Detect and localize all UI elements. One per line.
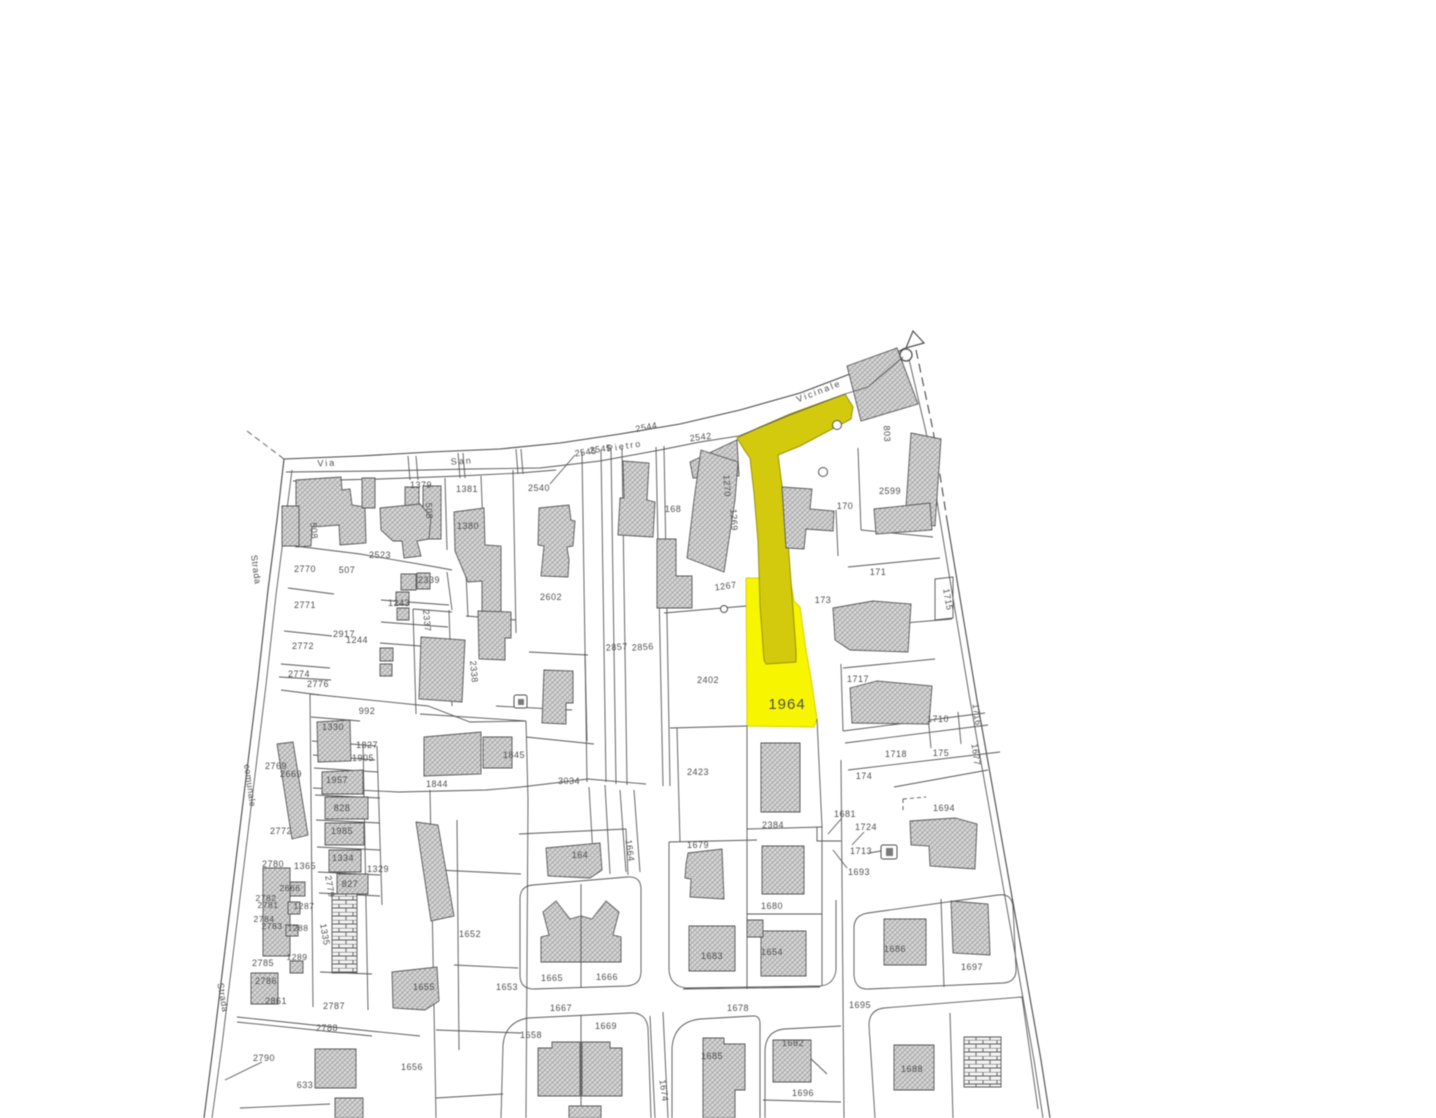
svg-text:1243: 1243 (388, 598, 410, 608)
svg-text:1289: 1289 (287, 952, 308, 962)
svg-text:1718: 1718 (885, 749, 907, 759)
svg-text:1693: 1693 (848, 867, 870, 877)
svg-text:2540: 2540 (528, 483, 550, 493)
svg-text:2785: 2785 (252, 958, 274, 968)
svg-text:1327: 1327 (356, 740, 378, 750)
svg-text:2602: 2602 (540, 592, 562, 602)
svg-text:2857: 2857 (605, 641, 628, 653)
svg-text:1683: 1683 (701, 951, 723, 961)
svg-text:1696: 1696 (792, 1088, 814, 1098)
svg-text:2856: 2856 (631, 641, 654, 653)
svg-text:1329: 1329 (367, 864, 389, 874)
svg-text:2790: 2790 (253, 1053, 275, 1063)
svg-text:175: 175 (933, 748, 950, 758)
svg-text:2772: 2772 (270, 826, 292, 836)
svg-text:Via: Via (317, 458, 336, 469)
svg-text:1330: 1330 (322, 722, 344, 732)
svg-text:1666: 1666 (596, 972, 618, 982)
svg-text:1679: 1679 (687, 840, 709, 850)
svg-text:505: 505 (424, 502, 435, 519)
svg-text:1365: 1365 (294, 861, 316, 871)
svg-text:508: 508 (308, 522, 319, 539)
svg-text:2523: 2523 (369, 550, 391, 560)
svg-text:170: 170 (837, 501, 854, 511)
svg-text:1844: 1844 (426, 779, 448, 789)
svg-text:168: 168 (665, 504, 682, 514)
svg-text:1964: 1964 (768, 696, 805, 713)
svg-text:507: 507 (339, 565, 356, 575)
svg-text:1269: 1269 (728, 509, 739, 532)
svg-text:2787: 2787 (323, 1001, 345, 1011)
svg-text:2772: 2772 (292, 641, 314, 651)
svg-text:827: 827 (342, 879, 359, 889)
svg-text:1653: 1653 (496, 982, 518, 992)
svg-text:1244: 1244 (346, 635, 368, 645)
svg-text:1379: 1379 (410, 480, 432, 490)
svg-text:2339: 2339 (418, 575, 440, 585)
svg-text:803: 803 (882, 425, 893, 442)
svg-text:1334: 1334 (332, 853, 354, 863)
svg-text:1680: 1680 (761, 901, 783, 911)
svg-text:1717: 1717 (847, 674, 869, 684)
svg-text:2788: 2788 (316, 1023, 338, 1033)
svg-text:2776: 2776 (307, 679, 329, 689)
svg-text:2861: 2861 (265, 996, 287, 1006)
svg-text:2384: 2384 (762, 820, 784, 830)
svg-text:173: 173 (815, 595, 832, 605)
svg-text:2337: 2337 (421, 609, 433, 632)
svg-text:1695: 1695 (849, 1000, 871, 1010)
svg-text:1667: 1667 (550, 1003, 572, 1013)
svg-text:1985: 1985 (331, 826, 353, 836)
svg-text:1682: 1682 (782, 1038, 804, 1048)
svg-text:1287: 1287 (294, 901, 315, 911)
svg-text:1678: 1678 (727, 1003, 749, 1013)
svg-text:2770: 2770 (294, 564, 316, 574)
svg-text:1270: 1270 (721, 475, 732, 498)
svg-text:1688: 1688 (901, 1064, 923, 1074)
svg-text:828: 828 (334, 803, 351, 813)
svg-text:171: 171 (870, 567, 887, 577)
svg-text:2783: 2783 (262, 921, 283, 931)
svg-text:1686: 1686 (884, 944, 906, 954)
svg-text:1288: 1288 (288, 923, 309, 933)
svg-text:2774: 2774 (288, 669, 310, 679)
svg-text:2599: 2599 (879, 486, 901, 496)
svg-text:1665: 1665 (541, 973, 563, 983)
svg-text:1656: 1656 (401, 1062, 423, 1072)
svg-text:2781: 2781 (258, 900, 279, 910)
svg-text:2338: 2338 (468, 660, 480, 683)
svg-text:1905: 1905 (352, 753, 374, 763)
svg-text:1697: 1697 (961, 962, 983, 972)
svg-text:1957: 1957 (326, 775, 348, 785)
svg-text:1658: 1658 (520, 1030, 542, 1040)
svg-text:174: 174 (856, 771, 873, 781)
svg-text:1381: 1381 (456, 484, 478, 494)
svg-text:1724: 1724 (855, 822, 877, 832)
svg-text:1694: 1694 (933, 803, 955, 813)
svg-text:1845: 1845 (503, 750, 525, 760)
svg-text:3034: 3034 (558, 776, 580, 786)
svg-text:1655: 1655 (413, 982, 435, 992)
svg-text:633: 633 (297, 1080, 314, 1090)
svg-text:1681: 1681 (834, 809, 856, 819)
svg-text:2402: 2402 (697, 675, 719, 685)
svg-text:2780: 2780 (262, 859, 284, 869)
svg-text:1669: 1669 (595, 1021, 617, 1031)
svg-text:2666: 2666 (280, 883, 301, 893)
svg-text:2669: 2669 (280, 769, 302, 779)
svg-text:1380: 1380 (457, 521, 479, 531)
svg-text:2771: 2771 (294, 600, 316, 610)
svg-text:1713: 1713 (850, 846, 872, 856)
svg-text:164: 164 (572, 850, 589, 860)
svg-text:2423: 2423 (687, 767, 709, 777)
svg-text:992: 992 (359, 706, 376, 716)
svg-text:San: San (450, 455, 473, 467)
svg-text:1654: 1654 (761, 947, 783, 957)
svg-text:1652: 1652 (459, 929, 481, 939)
svg-text:1710: 1710 (927, 714, 949, 724)
svg-text:2786: 2786 (255, 976, 277, 986)
svg-text:1685: 1685 (701, 1051, 723, 1061)
